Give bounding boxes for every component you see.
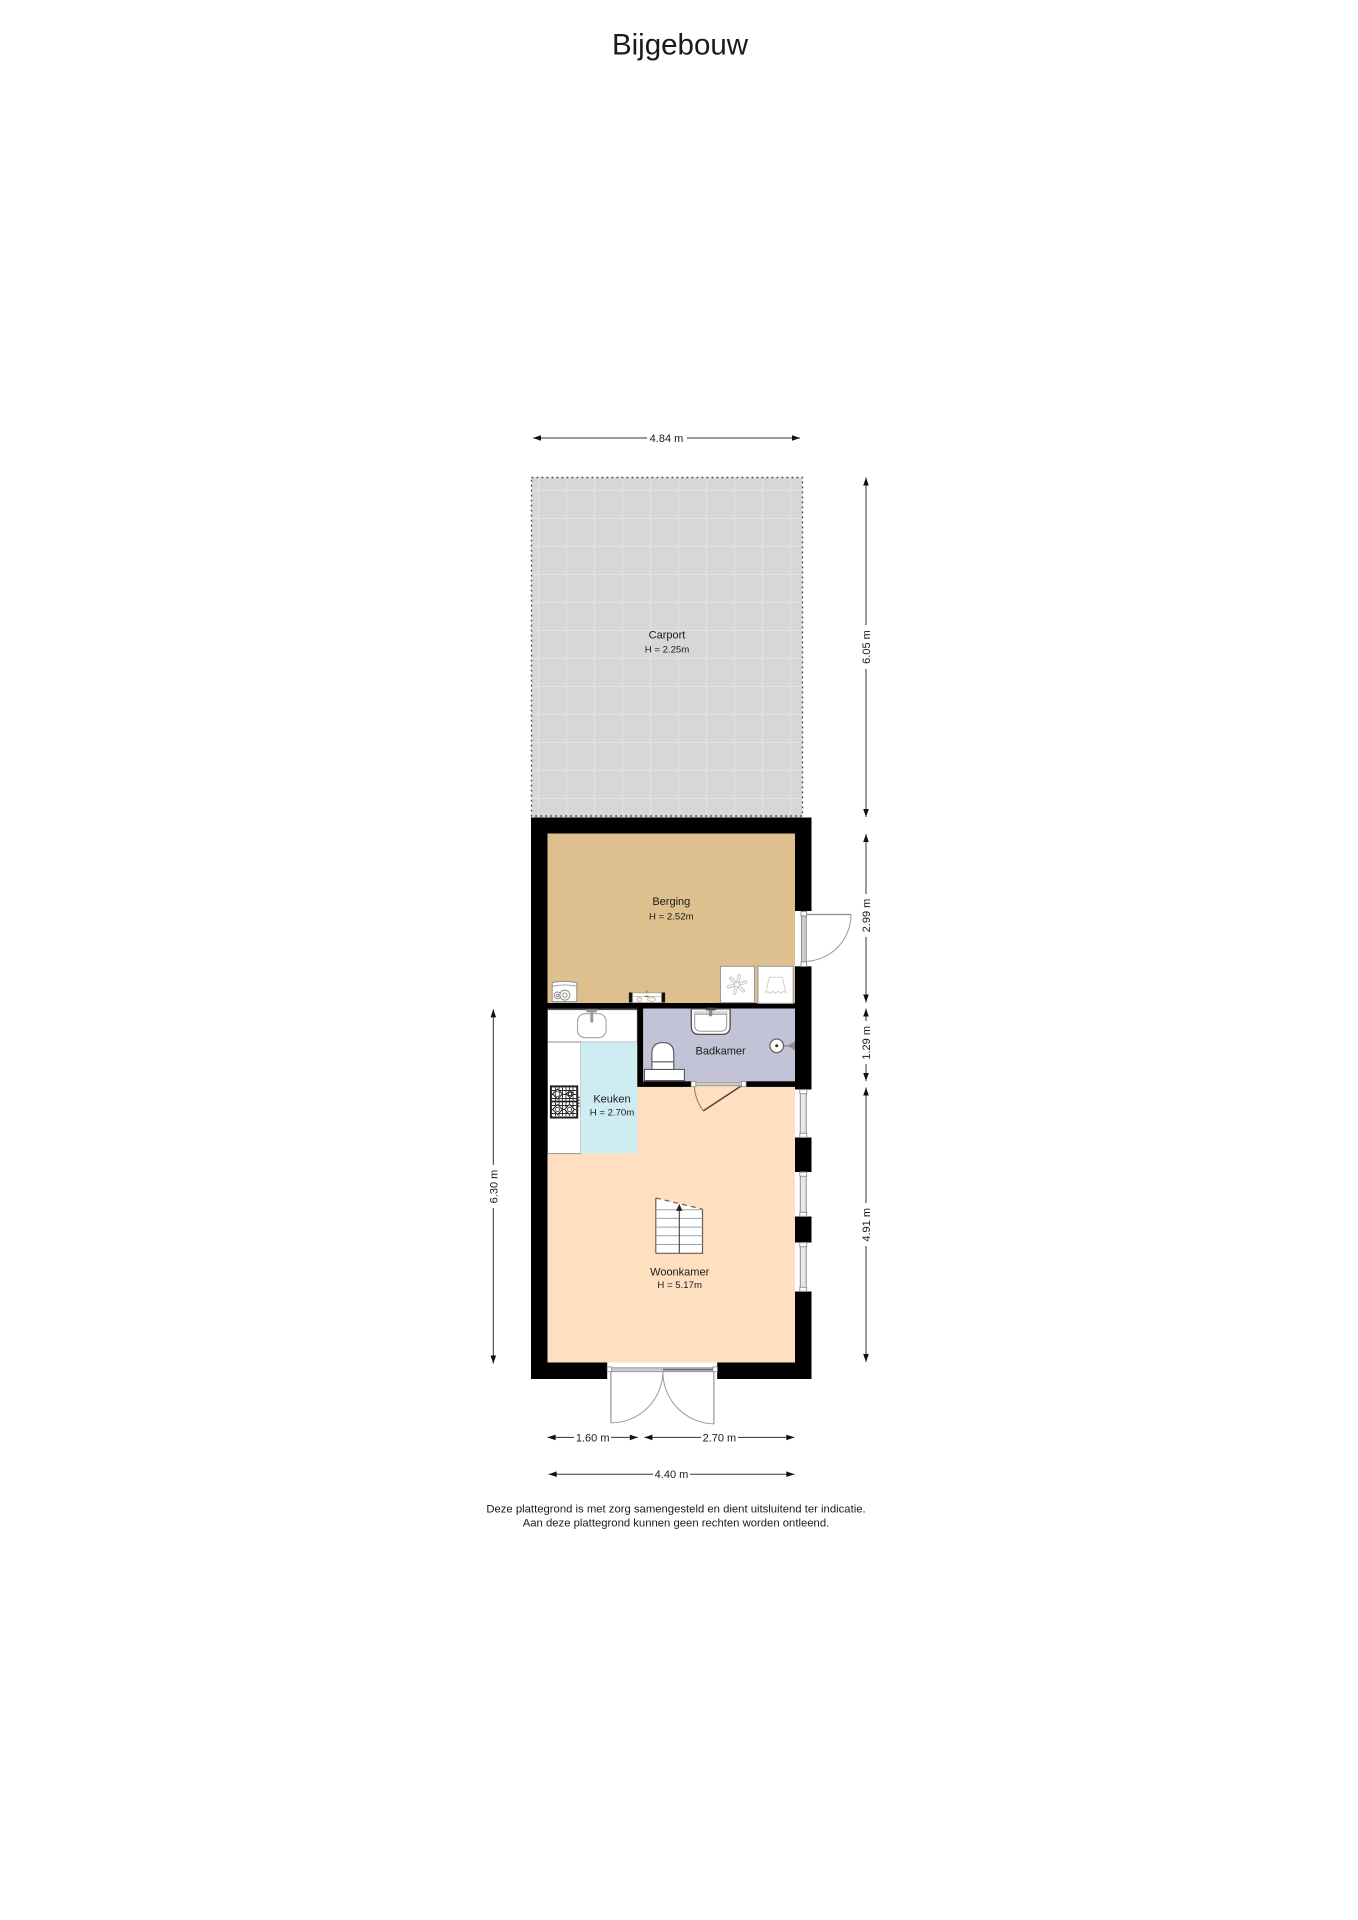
svg-text:2.70 m: 2.70 m	[703, 1432, 737, 1444]
svg-text:4.40 m: 4.40 m	[655, 1469, 689, 1481]
svg-text:Berging: Berging	[652, 896, 690, 908]
svg-text:4.84 m: 4.84 m	[650, 433, 684, 445]
svg-text:4.91 m: 4.91 m	[861, 1208, 873, 1242]
svg-text:H = 2.25m: H = 2.25m	[645, 645, 690, 656]
svg-text:Bijgebouw: Bijgebouw	[612, 29, 749, 62]
svg-text:2.99 m: 2.99 m	[861, 899, 873, 933]
svg-text:H = 2.70m: H = 2.70m	[590, 1107, 635, 1118]
svg-text:Aan deze plattegrond kunnen ge: Aan deze plattegrond kunnen geen rechten…	[523, 1517, 830, 1529]
svg-text:Carport: Carport	[649, 630, 686, 642]
svg-text:6.30 m: 6.30 m	[488, 1170, 500, 1204]
svg-text:Woonkamer: Woonkamer	[650, 1267, 709, 1279]
svg-text:Keuken: Keuken	[593, 1094, 630, 1106]
svg-text:1.60 m: 1.60 m	[576, 1432, 610, 1444]
svg-text:Badkamer: Badkamer	[696, 1045, 746, 1057]
svg-text:Deze plattegrond is met zorg s: Deze plattegrond is met zorg samengestel…	[486, 1504, 865, 1516]
svg-text:H = 5.17m: H = 5.17m	[657, 1280, 702, 1291]
svg-text:H = 2.52m: H = 2.52m	[649, 912, 694, 923]
svg-text:1.29 m: 1.29 m	[861, 1026, 873, 1060]
svg-text:6.05 m: 6.05 m	[861, 630, 873, 664]
